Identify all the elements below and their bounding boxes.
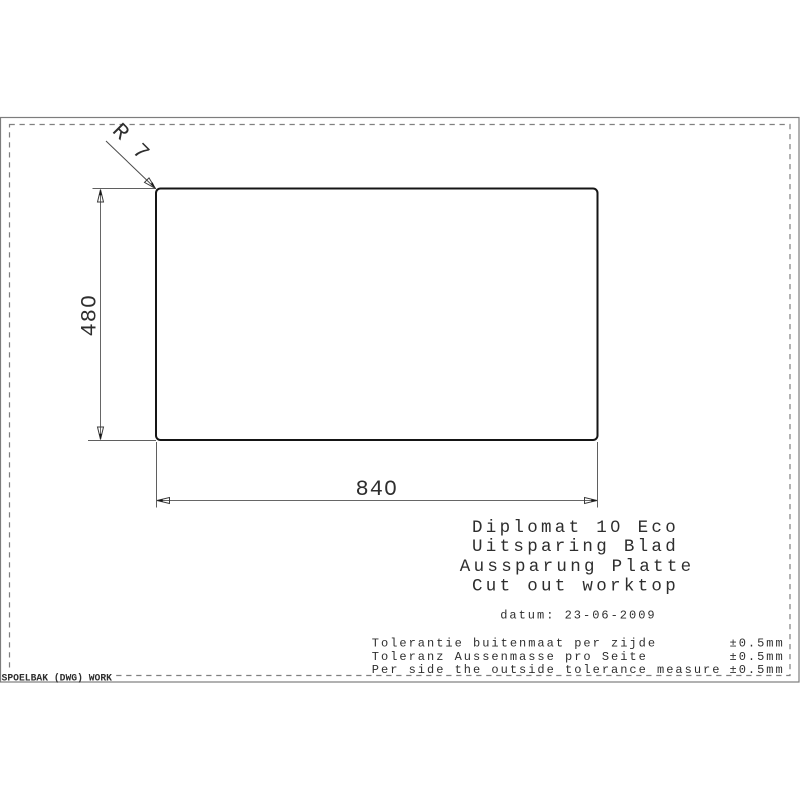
- svg-text:datum: 23-06-2009: datum: 23-06-2009: [500, 608, 656, 622]
- svg-text:Uitsparing Blad: Uitsparing Blad: [472, 537, 679, 557]
- svg-text:Diplomat 10 Eco: Diplomat 10 Eco: [472, 518, 679, 538]
- svg-text:R 7: R 7: [107, 119, 155, 167]
- svg-text:Toleranz Aussenmasse pro Seite: Toleranz Aussenmasse pro Seite: [372, 650, 648, 664]
- svg-text:±0.5mm: ±0.5mm: [730, 636, 785, 650]
- svg-text:Tolerantie buitenmaat per zijd: Tolerantie buitenmaat per zijde: [372, 636, 657, 650]
- svg-text:±0.5mm: ±0.5mm: [730, 663, 785, 677]
- svg-text:±0.5mm: ±0.5mm: [730, 650, 785, 664]
- svg-text:Per side the outside tolerance: Per side the outside tolerance measure: [372, 663, 722, 677]
- svg-text:SPOELBAK (DWG) WORK: SPOELBAK (DWG) WORK: [2, 673, 113, 684]
- svg-text:Aussparung Platte: Aussparung Platte: [460, 557, 695, 577]
- svg-text:Cut out worktop: Cut out worktop: [472, 577, 679, 597]
